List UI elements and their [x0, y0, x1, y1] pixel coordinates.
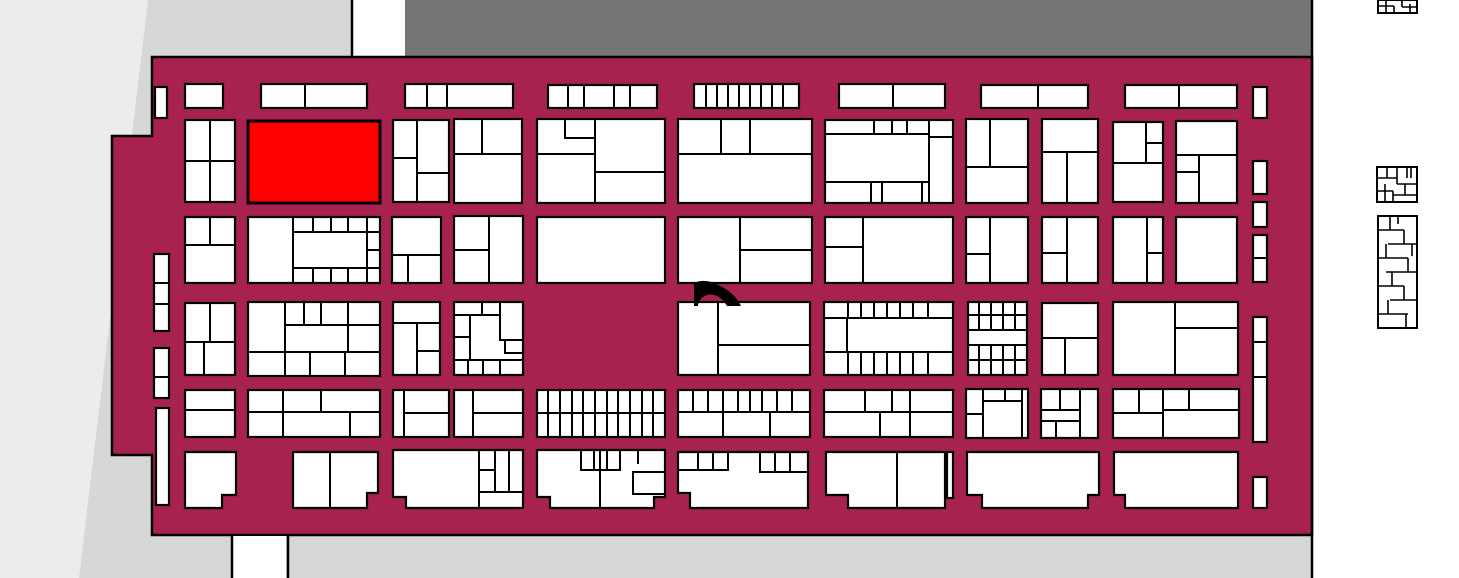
booth[interactable] — [1113, 122, 1163, 202]
booth[interactable] — [405, 84, 513, 108]
booth[interactable] — [1253, 235, 1267, 282]
booth[interactable] — [694, 84, 799, 108]
booth[interactable] — [154, 348, 169, 398]
booth[interactable] — [1253, 161, 1267, 194]
hall-thumbnail-3[interactable] — [1378, 216, 1417, 328]
hall-thumbnail-2[interactable] — [1377, 167, 1417, 202]
entrance-corridor — [233, 536, 286, 578]
hall-thumbnail-outline[interactable] — [1377, 167, 1417, 202]
booth[interactable] — [293, 452, 378, 508]
booth[interactable] — [537, 217, 665, 283]
booth[interactable] — [678, 452, 808, 508]
booth[interactable] — [454, 302, 523, 375]
booth[interactable] — [1125, 85, 1237, 108]
booth[interactable] — [1176, 217, 1237, 283]
booth[interactable] — [1041, 389, 1098, 438]
booth[interactable] — [185, 217, 235, 283]
booth[interactable] — [1113, 389, 1239, 438]
hall-thumbnail-1[interactable] — [1378, 0, 1417, 13]
hall-thumbnail-outline[interactable] — [1378, 216, 1417, 328]
booth[interactable] — [1113, 217, 1163, 283]
booth[interactable] — [537, 450, 665, 508]
booth[interactable] — [454, 390, 523, 437]
booth[interactable] — [1113, 302, 1238, 375]
booth[interactable] — [678, 390, 810, 437]
booth[interactable] — [156, 408, 169, 505]
booth[interactable] — [393, 120, 449, 202]
booth[interactable] — [454, 119, 522, 203]
booth[interactable] — [1253, 202, 1267, 227]
booth[interactable] — [537, 390, 665, 437]
booth[interactable] — [1176, 121, 1237, 203]
floorplan-viewport — [0, 0, 1459, 578]
booth[interactable] — [185, 303, 235, 375]
booth[interactable] — [981, 85, 1088, 108]
booth[interactable] — [825, 120, 953, 203]
booth[interactable] — [966, 217, 1028, 283]
booth[interactable] — [839, 84, 945, 108]
exhibition-hall-map — [0, 0, 1459, 578]
booth[interactable] — [968, 302, 1027, 375]
booth[interactable] — [967, 452, 1099, 508]
booth[interactable] — [248, 217, 380, 283]
booth[interactable] — [1253, 477, 1267, 508]
booth[interactable] — [454, 216, 523, 283]
booth[interactable] — [966, 119, 1028, 203]
booth[interactable] — [154, 254, 169, 331]
booth[interactable] — [966, 389, 1028, 438]
booth[interactable] — [155, 87, 167, 118]
booth[interactable] — [392, 217, 441, 283]
booth[interactable] — [393, 302, 440, 375]
booth[interactable] — [248, 302, 380, 376]
booth[interactable] — [261, 84, 367, 108]
booth-selected[interactable] — [248, 121, 380, 203]
booth[interactable] — [248, 390, 380, 437]
booth[interactable] — [1253, 87, 1267, 118]
booth[interactable] — [824, 302, 953, 375]
booth[interactable] — [678, 119, 812, 203]
booth[interactable] — [824, 390, 953, 437]
booth[interactable] — [1114, 452, 1238, 508]
booth[interactable] — [185, 84, 223, 108]
hall-thumbnail-outline[interactable] — [1378, 0, 1417, 13]
booth[interactable] — [1253, 317, 1267, 442]
booth[interactable] — [548, 85, 657, 108]
booth[interactable] — [947, 452, 953, 498]
booth[interactable] — [185, 120, 235, 202]
booth[interactable] — [537, 119, 665, 203]
booth[interactable] — [678, 217, 812, 283]
booth[interactable] — [825, 217, 953, 283]
booth[interactable] — [393, 450, 523, 508]
booth[interactable] — [1042, 303, 1098, 375]
booth[interactable] — [185, 390, 235, 437]
booth[interactable] — [1042, 119, 1098, 203]
adjacent-building — [405, 0, 1312, 57]
booth[interactable] — [1042, 217, 1098, 283]
booth[interactable] — [678, 302, 810, 375]
booth[interactable] — [393, 390, 449, 437]
